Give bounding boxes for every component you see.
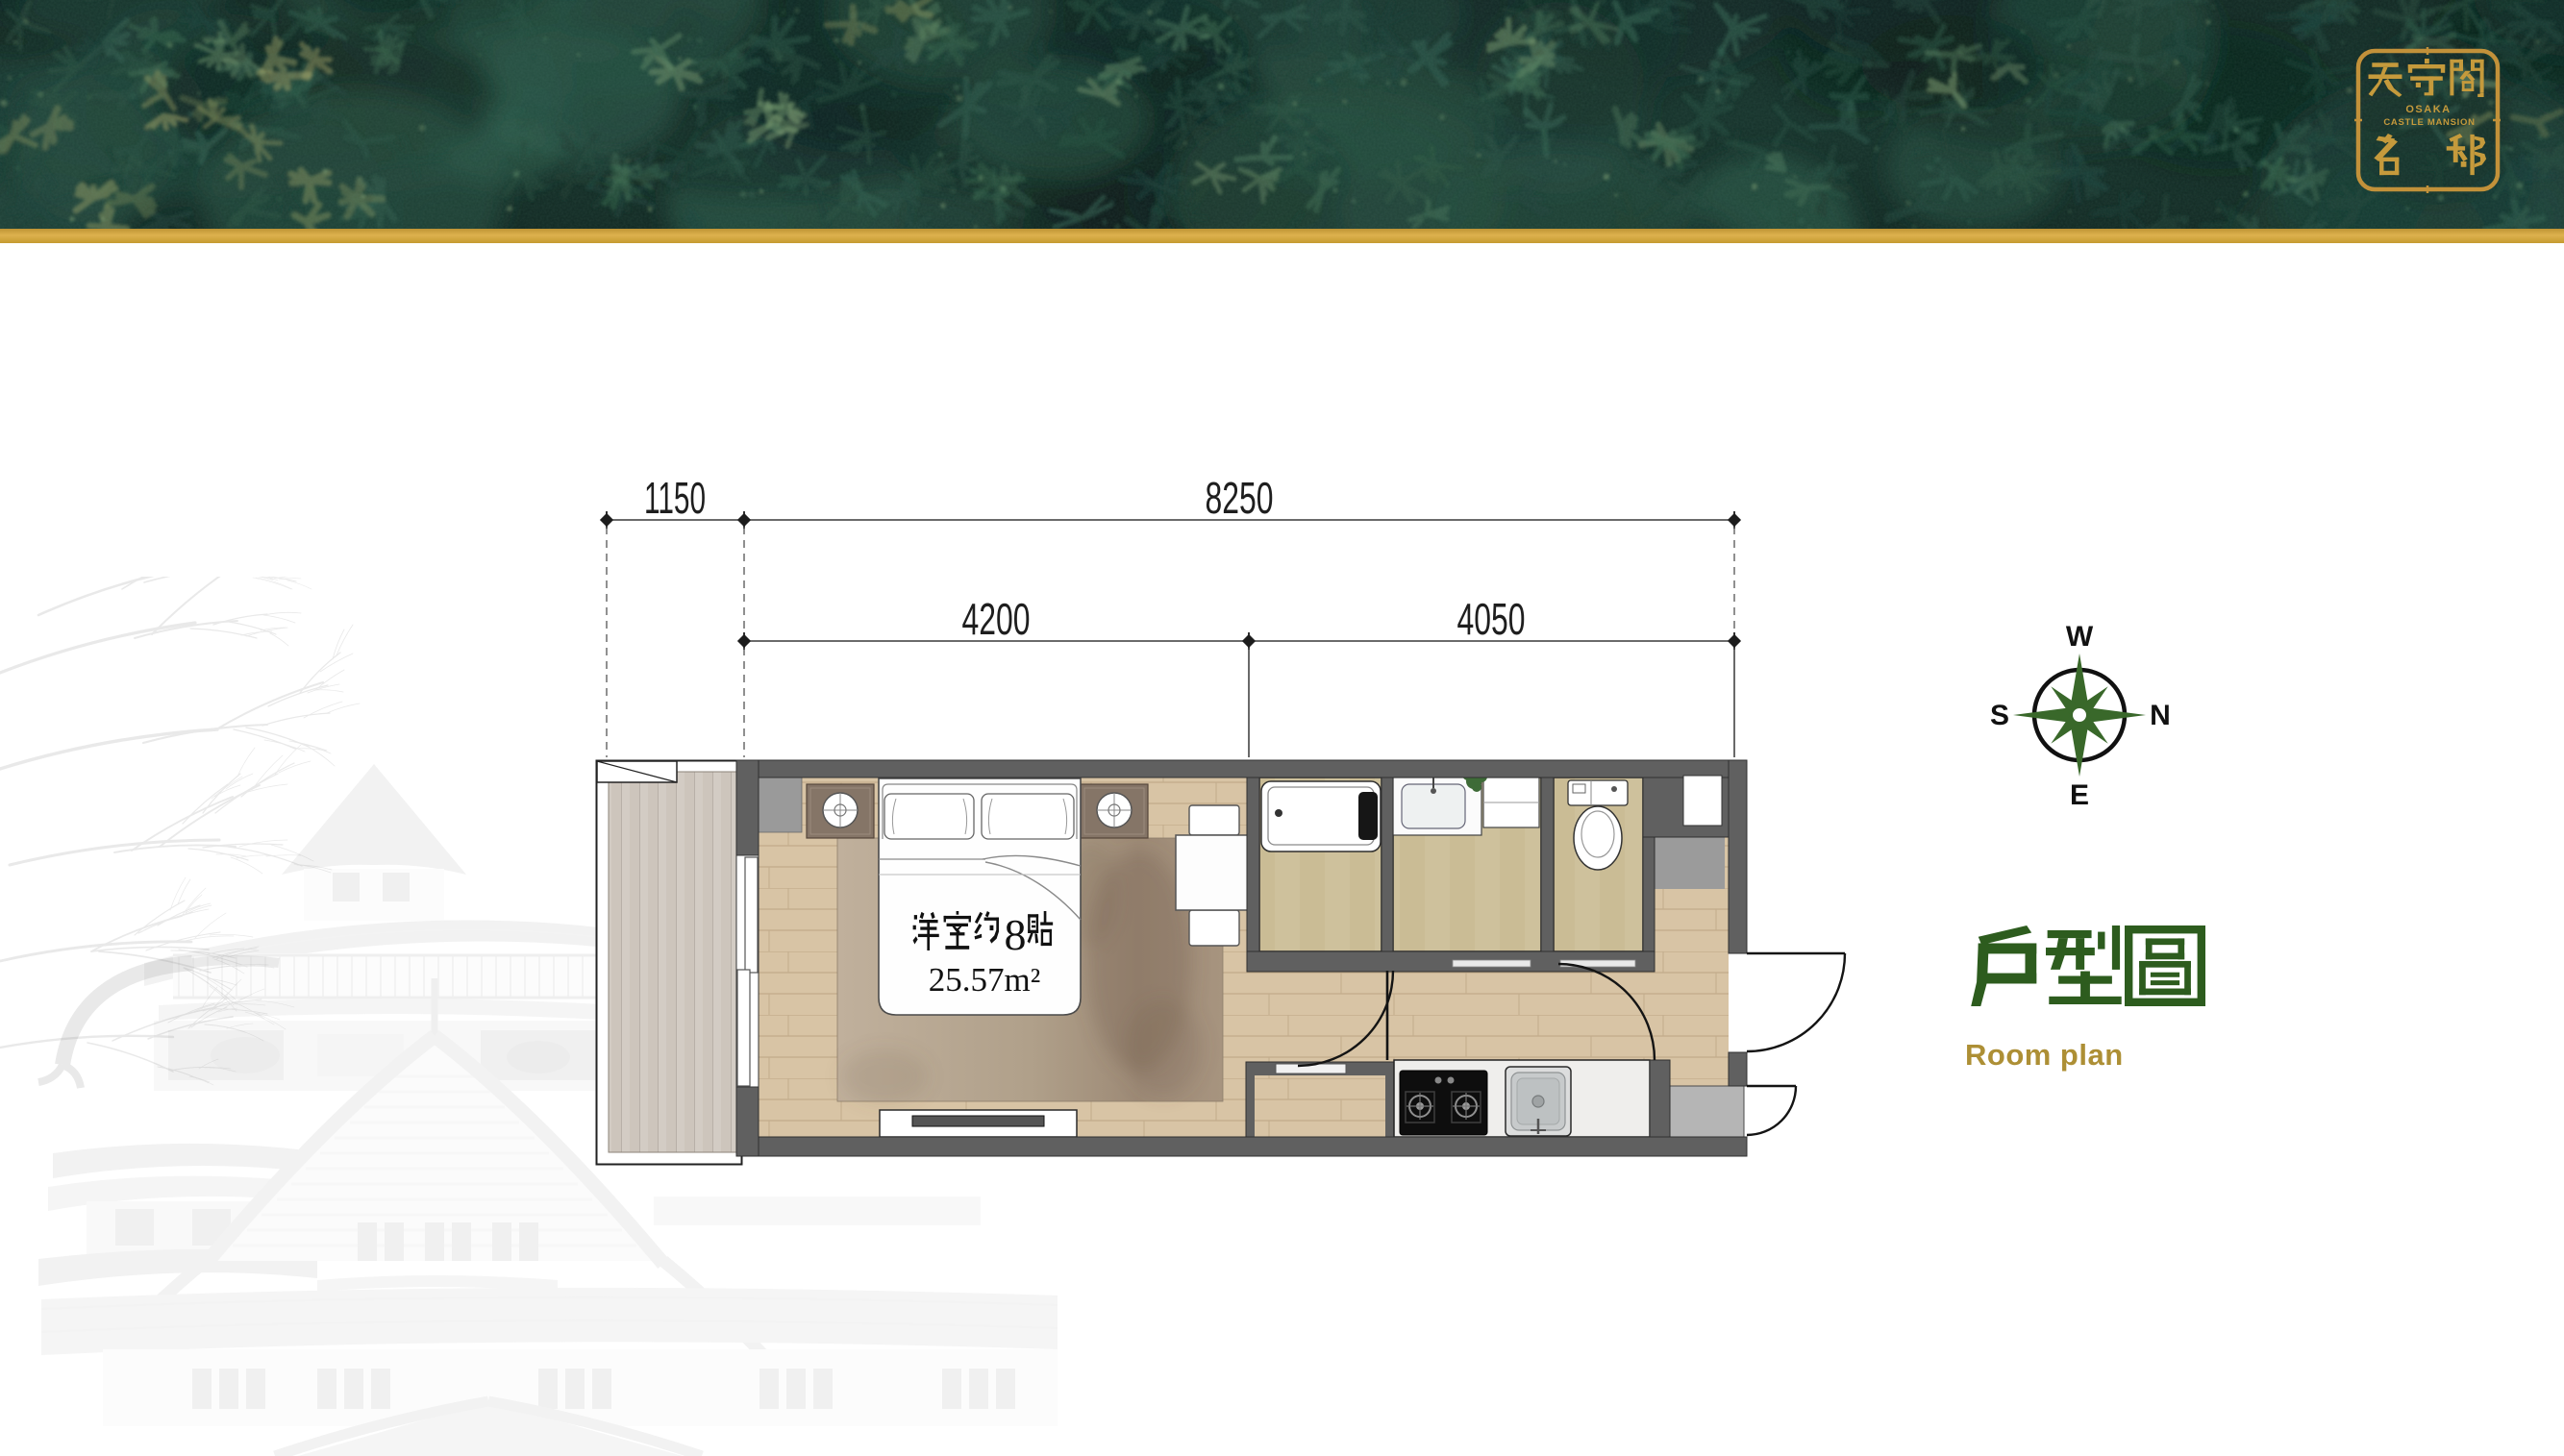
svg-text:S: S (1990, 700, 2009, 731)
svg-text:8250: 8250 (1206, 473, 1274, 523)
svg-text:Room plan: Room plan (1965, 1038, 2124, 1072)
svg-text:4050: 4050 (1457, 594, 1526, 644)
svg-text:N: N (2150, 700, 2171, 731)
svg-text:E: E (2070, 779, 2089, 811)
svg-text:4200: 4200 (962, 594, 1031, 644)
svg-text:W: W (2066, 621, 2094, 653)
svg-text:CASTLE MANSION: CASTLE MANSION (2383, 117, 2475, 128)
svg-text:8: 8 (1005, 910, 1027, 959)
svg-text:1150: 1150 (644, 473, 706, 523)
svg-text:25.57m²: 25.57m² (929, 961, 1040, 999)
svg-text:OSAKA: OSAKA (2405, 104, 2451, 115)
